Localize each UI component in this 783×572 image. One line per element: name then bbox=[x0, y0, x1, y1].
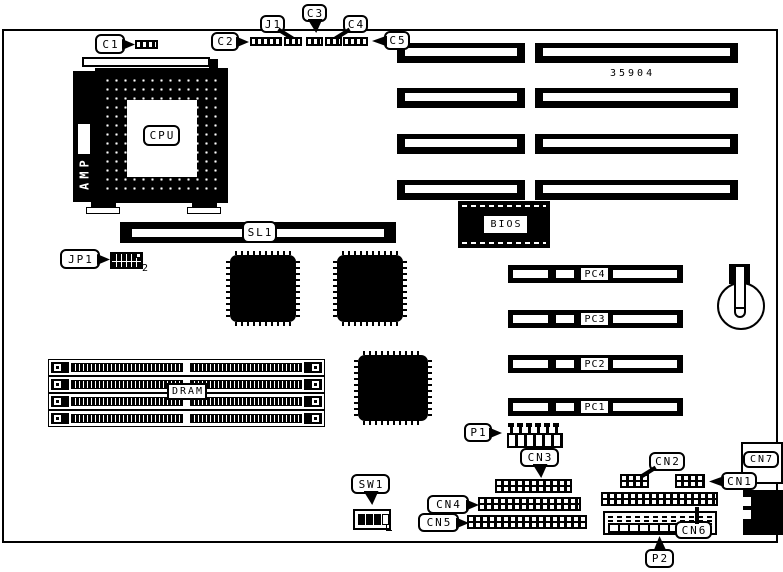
callout-sw1: SW1 bbox=[351, 474, 390, 494]
callout-cn2: CN2 bbox=[649, 452, 685, 471]
slot-key-notch bbox=[613, 403, 677, 411]
connector-c5 bbox=[343, 37, 368, 46]
callout-c2: C2 bbox=[211, 32, 239, 51]
cpu-label-text: CPU bbox=[148, 130, 176, 141]
callout-c1-text: C1 bbox=[100, 39, 119, 50]
qfp-chip-pins-right bbox=[403, 260, 407, 317]
callout-cn3: CN3 bbox=[520, 448, 559, 467]
simm-clip-right bbox=[304, 379, 322, 390]
slot-key-notch bbox=[613, 270, 677, 278]
qfp-chip-pins-right bbox=[428, 360, 432, 416]
dram-label-text: DRAM bbox=[170, 387, 204, 397]
slot-key-notch bbox=[556, 360, 574, 368]
callout-cn5-text: CN5 bbox=[425, 517, 453, 528]
isa-slot-3-right bbox=[535, 134, 738, 154]
simm-clip-left bbox=[51, 379, 69, 390]
simm-contacts bbox=[71, 414, 183, 423]
jumper-jp1-pin-number: 2 bbox=[142, 263, 148, 274]
connector-c3 bbox=[306, 37, 323, 46]
socket-foot-left-base bbox=[86, 207, 120, 214]
simm-contacts bbox=[190, 414, 302, 423]
socket-foot-right-base bbox=[187, 207, 221, 214]
qfp-chip-pins-left bbox=[354, 360, 358, 416]
callout-p1: P1 bbox=[464, 423, 492, 442]
isa-slot-4-right bbox=[535, 180, 738, 200]
callout-cn2-text: CN2 bbox=[653, 456, 681, 467]
isa-slot-1-right bbox=[535, 43, 738, 63]
jumper-jp1-pin-marker bbox=[136, 253, 141, 258]
slot-pc4-label: PC4 bbox=[579, 266, 610, 282]
dip-switch-position bbox=[366, 514, 373, 525]
isa-slot-2-left bbox=[397, 88, 525, 108]
callout-sw1-text: SW1 bbox=[357, 479, 385, 490]
qfp-chip-pins-left bbox=[226, 260, 230, 317]
callout-c4: C4 bbox=[343, 15, 368, 33]
callout-cn5: CN5 bbox=[418, 513, 459, 532]
dip-switch-position bbox=[374, 514, 381, 525]
callout-c5-text: C5 bbox=[387, 35, 406, 46]
slot-pc4: PC4 bbox=[508, 265, 683, 283]
connector-j1 bbox=[284, 37, 302, 46]
slot-key-notch bbox=[556, 270, 574, 278]
simm-clip-left bbox=[51, 362, 69, 373]
isa-slot-2-right bbox=[535, 88, 738, 108]
slot-key-notch bbox=[513, 360, 548, 368]
motherboard-diagram: C1 C2 J1 C3 C4 C5 CPU AMP bbox=[0, 0, 783, 572]
slot-key-notch bbox=[513, 270, 548, 278]
callout-cn1-text: CN1 bbox=[725, 476, 753, 487]
callout-cn4-text: CN4 bbox=[434, 499, 462, 510]
dip-switch-position bbox=[358, 514, 365, 525]
slot-key-notch bbox=[556, 315, 574, 323]
simm-slot-4 bbox=[48, 410, 325, 427]
isa-slot-1-left bbox=[397, 43, 525, 63]
connector-c4 bbox=[325, 37, 342, 46]
bios-label-text: BIOS bbox=[488, 220, 522, 230]
connector-c2 bbox=[250, 37, 282, 46]
qfp-chip-pins-right bbox=[296, 260, 300, 317]
callout-cn7: CN7 bbox=[743, 451, 779, 468]
slot-key-notch bbox=[613, 360, 677, 368]
dram-label: DRAM bbox=[167, 383, 207, 400]
amp-label-text: AMP bbox=[73, 144, 96, 202]
slot-pc3-label: PC3 bbox=[579, 311, 610, 327]
battery-post-icon bbox=[734, 265, 746, 318]
header-cn1 bbox=[675, 474, 705, 488]
slot-key-notch bbox=[513, 403, 548, 411]
isa-slot-4-left bbox=[397, 180, 525, 200]
simm-clip-left bbox=[51, 396, 69, 407]
callout-cn6-text: CN6 bbox=[680, 525, 708, 536]
keyboard-port-side bbox=[743, 490, 783, 535]
slot-key-notch bbox=[556, 403, 574, 411]
callout-cn3-text: CN3 bbox=[526, 452, 554, 463]
header-cn4 bbox=[478, 497, 581, 511]
callout-c3: C3 bbox=[302, 4, 327, 22]
power-connector-p1 bbox=[507, 433, 563, 448]
board-part-number: 35904 bbox=[610, 68, 655, 79]
callout-cn6: CN6 bbox=[675, 521, 712, 539]
sl1-label: SL1 bbox=[242, 221, 277, 243]
callout-cn4: CN4 bbox=[427, 495, 469, 514]
header-cn5 bbox=[467, 515, 587, 529]
simm-clip-left bbox=[51, 413, 69, 424]
simm-clip-right bbox=[304, 362, 322, 373]
slot-pc2-label: PC2 bbox=[579, 356, 610, 372]
slot-pc2: PC2 bbox=[508, 355, 683, 373]
simm-clip-right bbox=[304, 413, 322, 424]
dip-switch-pin-marker bbox=[386, 524, 392, 531]
slot-pc1: PC1 bbox=[508, 398, 683, 416]
callout-cn7-text: CN7 bbox=[748, 455, 774, 465]
isa-slot-3-left bbox=[397, 134, 525, 154]
callout-p1-text: P1 bbox=[468, 427, 487, 438]
callout-cn1: CN1 bbox=[721, 472, 757, 490]
qfp-chip-1 bbox=[230, 255, 296, 322]
callout-c3-text: C3 bbox=[305, 8, 324, 19]
simm-slot-1 bbox=[48, 359, 325, 376]
simm-contacts bbox=[71, 363, 183, 372]
callout-leader-line bbox=[695, 507, 699, 524]
qfp-chip-3 bbox=[358, 355, 428, 421]
connector-c1 bbox=[135, 40, 158, 49]
simm-contacts bbox=[190, 363, 302, 372]
qfp-chip-pins-left bbox=[333, 260, 337, 317]
callout-j1: J1 bbox=[260, 15, 285, 33]
callout-p2-text: P2 bbox=[650, 553, 669, 564]
slot-pc3: PC3 bbox=[508, 310, 683, 328]
callout-jp1: JP1 bbox=[60, 249, 100, 269]
header-cn6 bbox=[601, 492, 718, 506]
header-cn3 bbox=[495, 479, 572, 493]
slot-key-notch bbox=[513, 315, 548, 323]
zif-socket-lever bbox=[82, 57, 210, 67]
sl1-label-text: SL1 bbox=[246, 227, 274, 238]
slot-pc1-label: PC1 bbox=[579, 399, 610, 415]
callout-jp1-text: JP1 bbox=[66, 254, 94, 265]
simm-clip-right bbox=[304, 396, 322, 407]
qfp-chip-2 bbox=[337, 255, 403, 322]
slot-key-notch bbox=[613, 315, 677, 323]
bios-label: BIOS bbox=[484, 216, 527, 233]
cpu-label: CPU bbox=[143, 125, 180, 146]
callout-c5: C5 bbox=[384, 31, 410, 50]
callout-c1: C1 bbox=[95, 34, 125, 54]
callout-c2-text: C2 bbox=[215, 36, 234, 47]
callout-p2: P2 bbox=[645, 549, 674, 568]
